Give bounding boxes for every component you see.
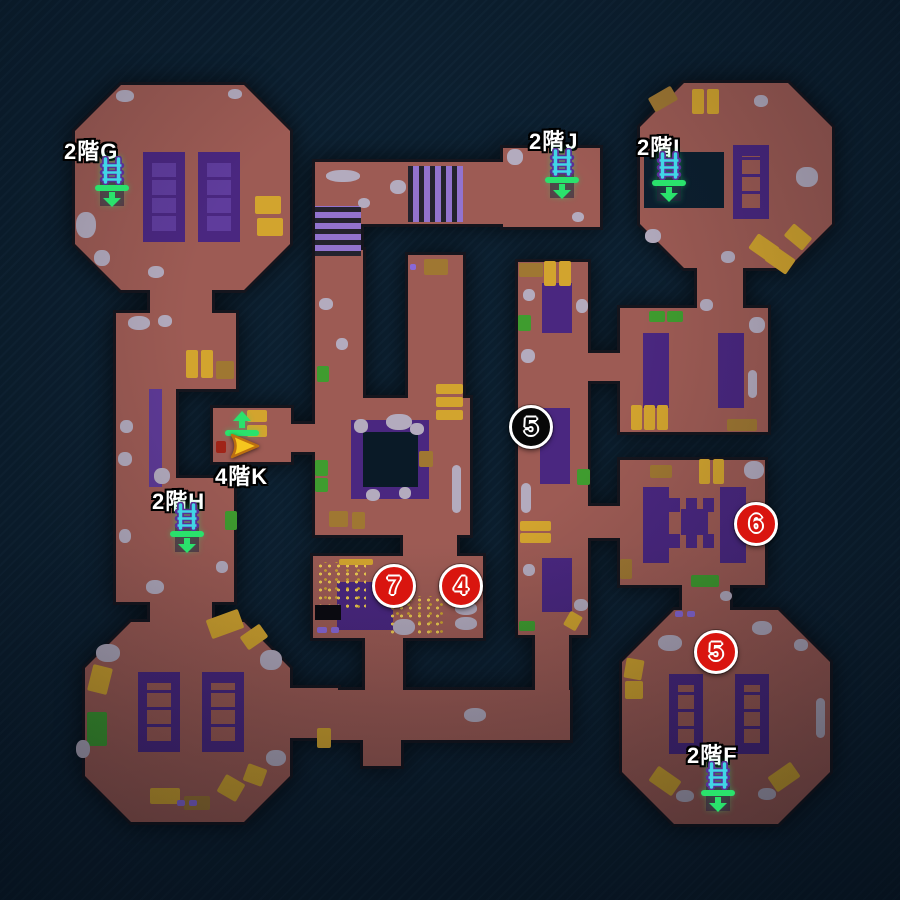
label-floor4-k: 4階K — [215, 459, 268, 491]
marker-number: 6 — [749, 512, 763, 537]
marker-number: 5 — [524, 415, 538, 440]
map-marker-5-center: 5 — [509, 405, 553, 449]
stairs-down-icon-g — [94, 156, 130, 208]
marker-number: 4 — [454, 574, 468, 599]
map-marker-5-southeast: 5 — [694, 630, 738, 674]
marker-number: 5 — [709, 640, 723, 665]
stairs-down-icon-i — [651, 151, 687, 203]
map-marker-7: 7 — [372, 564, 416, 608]
decor-red-box — [216, 441, 226, 453]
map-marker-6: 6 — [734, 502, 778, 546]
stairs-down-icon-j — [544, 148, 580, 200]
stairs-down-icon-f — [700, 761, 736, 813]
stairs-down-icon-h — [169, 502, 205, 554]
marker-number: 7 — [387, 574, 401, 599]
player-arrow-icon — [228, 432, 262, 460]
map-annotations: 2階G 2階J 2階I 4階K 2階H 2階F — [0, 0, 900, 900]
map-marker-4: 4 — [439, 564, 483, 608]
game-map-viewport[interactable]: 2階G 2階J 2階I 4階K 2階H 2階F — [0, 0, 900, 900]
